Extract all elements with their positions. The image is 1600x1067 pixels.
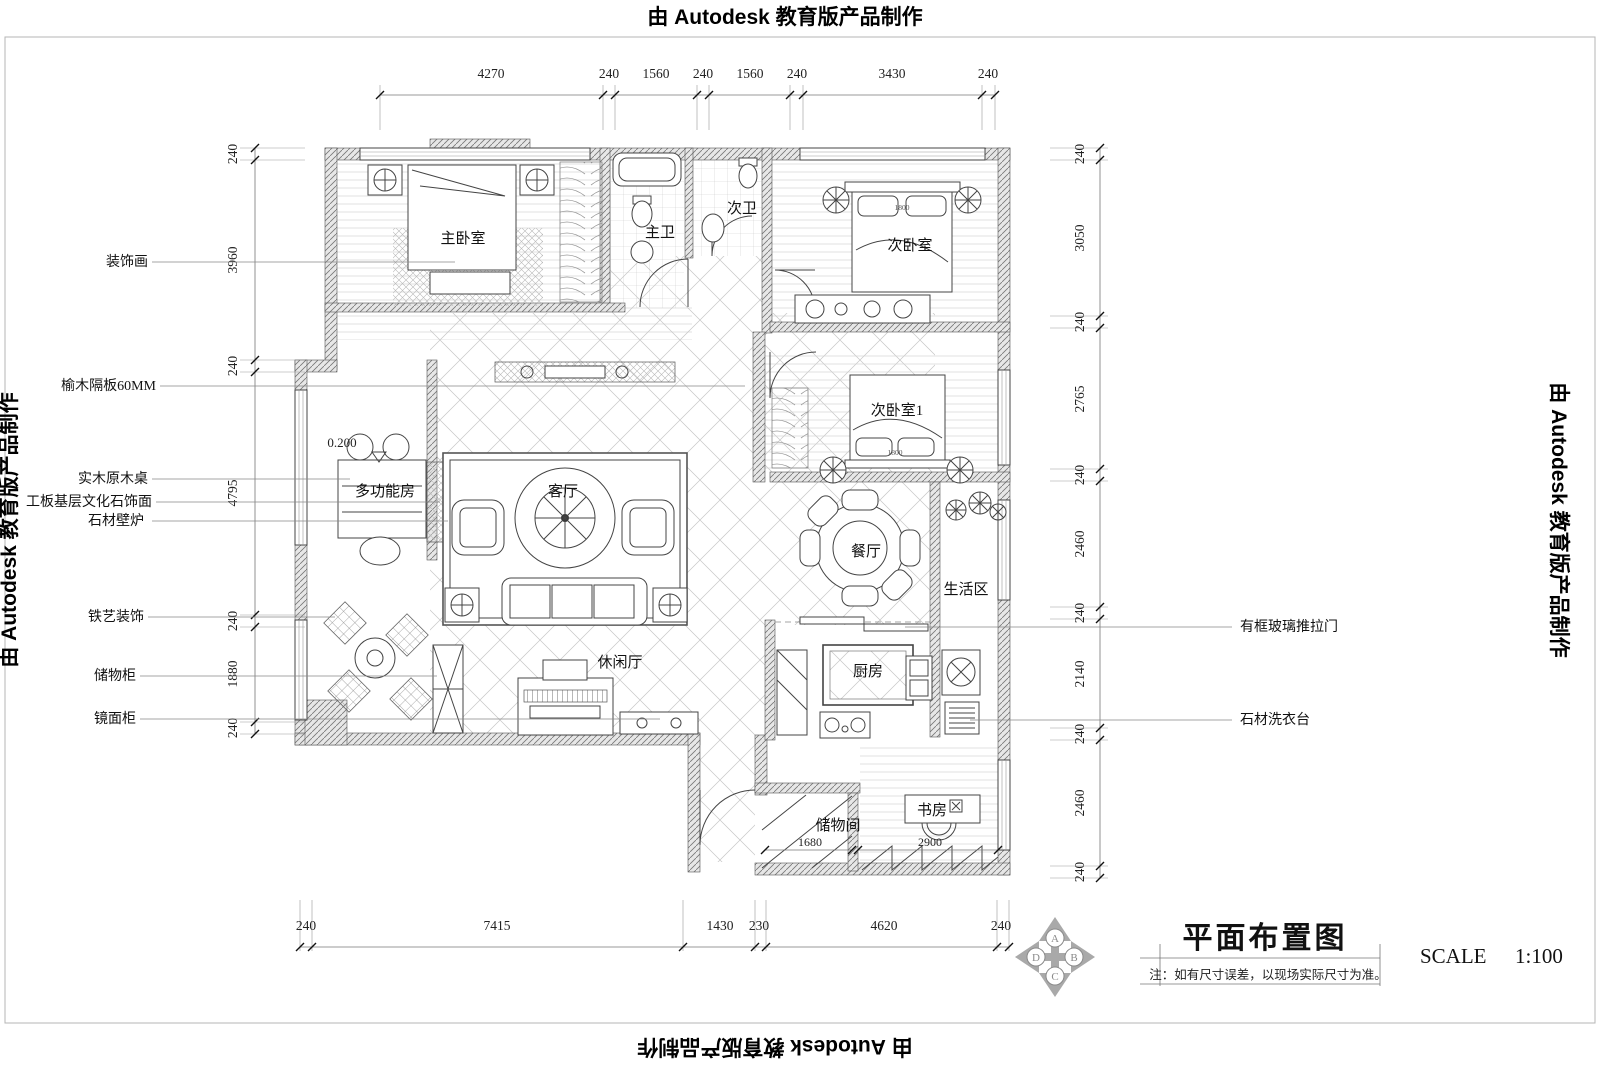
room-label-living-room: 客厅	[548, 483, 578, 500]
sliding-door-panel	[800, 617, 864, 624]
dim-bottom-1: 7415	[484, 918, 511, 933]
dim-right-6: 240	[1072, 603, 1087, 624]
dim-left-4: 240	[225, 611, 240, 632]
dim-right-3: 2765	[1072, 385, 1087, 412]
bedside-lamp	[955, 187, 981, 213]
cad-sheet: 主卧室 主卫 次卫 次卧室 次卧室1 客厅 多功能房 餐厅 生活区 厨房 休闲厅…	[0, 0, 1600, 1067]
annotation-elm-shelf: 榆木隔板60MM	[61, 378, 156, 394]
room-label-master-bath: 主卫	[645, 224, 675, 241]
dim-left-2: 240	[225, 356, 240, 377]
room-label-second-bedroom1: 次卧室1	[871, 402, 924, 419]
compass-letter-a: A	[1051, 933, 1059, 945]
dim-top-7: 240	[978, 66, 999, 81]
dim-right-0: 240	[1072, 144, 1087, 165]
dimension-chain-left: 240 3960 240 4795 240 1880 240	[225, 144, 305, 739]
dim-top-3: 240	[693, 66, 714, 81]
stove	[820, 712, 870, 738]
dim-top-5: 240	[787, 66, 808, 81]
window	[295, 620, 307, 720]
bedside-lamp	[823, 187, 849, 213]
tv-cabinet	[430, 272, 510, 294]
second-bed	[845, 182, 960, 292]
dim-right-8: 240	[1072, 724, 1087, 745]
window	[998, 760, 1010, 850]
wardrobe-hangers	[560, 162, 602, 302]
dim-left-3: 4795	[225, 479, 240, 506]
dim-left-5: 1880	[225, 660, 240, 687]
bedside-lamp	[947, 457, 973, 483]
annotation-iron-art: 铁艺装饰	[88, 609, 144, 625]
dim-right-4: 240	[1072, 465, 1087, 486]
room-label-leisure-hall: 休闲厅	[597, 654, 642, 671]
bed-width-label: 1800	[888, 448, 903, 457]
room-label-master-bedroom: 主卧室	[440, 230, 485, 247]
drawing-note: 注：如有尺寸误差，以现场实际尺寸为准。	[1149, 967, 1387, 982]
master-bed	[408, 165, 516, 270]
toilet	[739, 158, 757, 188]
scale-label: SCALE	[1420, 944, 1487, 968]
room-label-dining-room: 餐厅	[851, 543, 881, 560]
tv-wall	[495, 362, 675, 382]
window	[295, 390, 307, 545]
dim-right-10: 240	[1072, 862, 1087, 883]
bathtub	[613, 153, 681, 186]
kitchen-sink	[906, 656, 932, 700]
dim-right-1: 3050	[1072, 224, 1087, 251]
toilet	[632, 196, 652, 227]
dim-bottom-4: 4620	[871, 918, 898, 933]
sink	[702, 214, 724, 242]
drawing-title: 平面布置图	[1183, 922, 1348, 955]
watermark-top: 由 Autodesk 教育版产品制作	[647, 5, 922, 29]
window	[998, 370, 1010, 465]
room-label-storage-room: 储物间	[815, 817, 860, 834]
room-label-living-area: 生活区	[943, 581, 988, 598]
compass-icon: A B C D	[1015, 917, 1095, 997]
nightstand	[520, 165, 554, 195]
dim-top-4: 1560	[737, 66, 764, 81]
annotation-stone-laundry: 石材洗衣台	[1240, 712, 1310, 728]
dim-top-2: 1560	[643, 66, 670, 81]
watermark-bottom: 由 Autodesk 教育版产品制作	[637, 1035, 912, 1059]
cabinet	[620, 712, 698, 734]
room-label-multi-room: 多功能房	[355, 483, 415, 500]
dim-bottom-3: 230	[749, 918, 770, 933]
storage-width-dim: 1680	[798, 835, 822, 849]
side-table	[653, 588, 687, 622]
side-table	[445, 588, 479, 622]
dimension-chain-right: 240 3050 240 2765 240 2460 240 2140 240 …	[1050, 144, 1108, 883]
annotation-mirror-cabinet: 镜面柜	[94, 711, 136, 727]
sofa	[502, 578, 647, 625]
window	[800, 148, 985, 160]
annotation-storage-cabinet: 储物柜	[94, 668, 136, 684]
dim-right-2: 240	[1072, 312, 1087, 333]
compass-letter-c: C	[1051, 971, 1058, 983]
dimension-chain-bottom: 240 7415 1430 230 4620 240	[296, 900, 1013, 951]
dim-right-9: 2460	[1072, 789, 1087, 816]
room-label-study: 书房	[917, 802, 947, 819]
dim-top-1: 240	[599, 66, 620, 81]
dresser	[795, 295, 930, 323]
laundry-sink	[942, 650, 980, 695]
dim-bottom-0: 240	[296, 918, 317, 933]
dim-top-0: 4270	[478, 66, 505, 81]
watermark-left: 由 Autodesk 教育版产品制作	[0, 392, 21, 667]
annotation-stone-fireplace: 石材壁炉	[88, 513, 144, 529]
dim-left-1: 3960	[225, 246, 240, 273]
wardrobe-hangers	[772, 388, 808, 468]
dim-bottom-2: 1430	[707, 918, 734, 933]
dimension-chain-top: 4270 240 1560 240 1560 240 3430 240	[376, 66, 999, 130]
floor-plan-drawing: 主卧室 主卫 次卫 次卧室 次卧室1 客厅 多功能房 餐厅 生活区 厨房 休闲厅…	[0, 0, 1600, 1067]
washing-machine	[945, 702, 979, 734]
dim-bottom-5: 240	[991, 918, 1012, 933]
room-label-kitchen: 厨房	[853, 663, 883, 680]
annotation-decor-painting: 装饰画	[106, 254, 148, 270]
dim-left-6: 240	[225, 718, 240, 739]
compass-letter-b: B	[1070, 952, 1077, 964]
dim-top-6: 3430	[879, 66, 906, 81]
storage-cabinet	[433, 645, 463, 733]
room-label-second-bath: 次卫	[727, 200, 757, 217]
bedside-lamp	[820, 457, 846, 483]
kitchen-cabinet	[777, 650, 807, 735]
dim-left-0: 240	[225, 144, 240, 165]
armchair	[622, 500, 674, 555]
annotation-wood-table: 实木原木桌	[78, 471, 148, 487]
title-block: A B C D 平面布置图 注：如有尺寸误差，以现场实际尺寸为准。 SCALE …	[1015, 917, 1563, 997]
watermark-right: 由 Autodesk 教育版产品制作	[1547, 382, 1571, 657]
sliding-door-panel	[864, 624, 928, 631]
dim-right-7: 2140	[1072, 660, 1087, 687]
study-width-dim: 2900	[918, 835, 942, 849]
scale-value: 1:100	[1515, 944, 1563, 968]
dim-right-5: 2460	[1072, 530, 1087, 557]
window	[998, 500, 1010, 600]
sink	[631, 241, 653, 263]
annotation-culture-stone: 工板基层文化石饰面	[26, 493, 152, 510]
nightstand	[368, 165, 402, 195]
window	[360, 148, 590, 160]
compass-letter-d: D	[1032, 952, 1040, 964]
annotation-glass-sliding-door: 有框玻璃推拉门	[1240, 618, 1338, 635]
level-value: 0.200	[327, 435, 356, 450]
iron-art-set	[324, 602, 432, 720]
armchair	[452, 500, 504, 555]
bed-width-label: 1800	[895, 203, 910, 212]
room-label-second-bedroom: 次卧室	[887, 237, 932, 254]
